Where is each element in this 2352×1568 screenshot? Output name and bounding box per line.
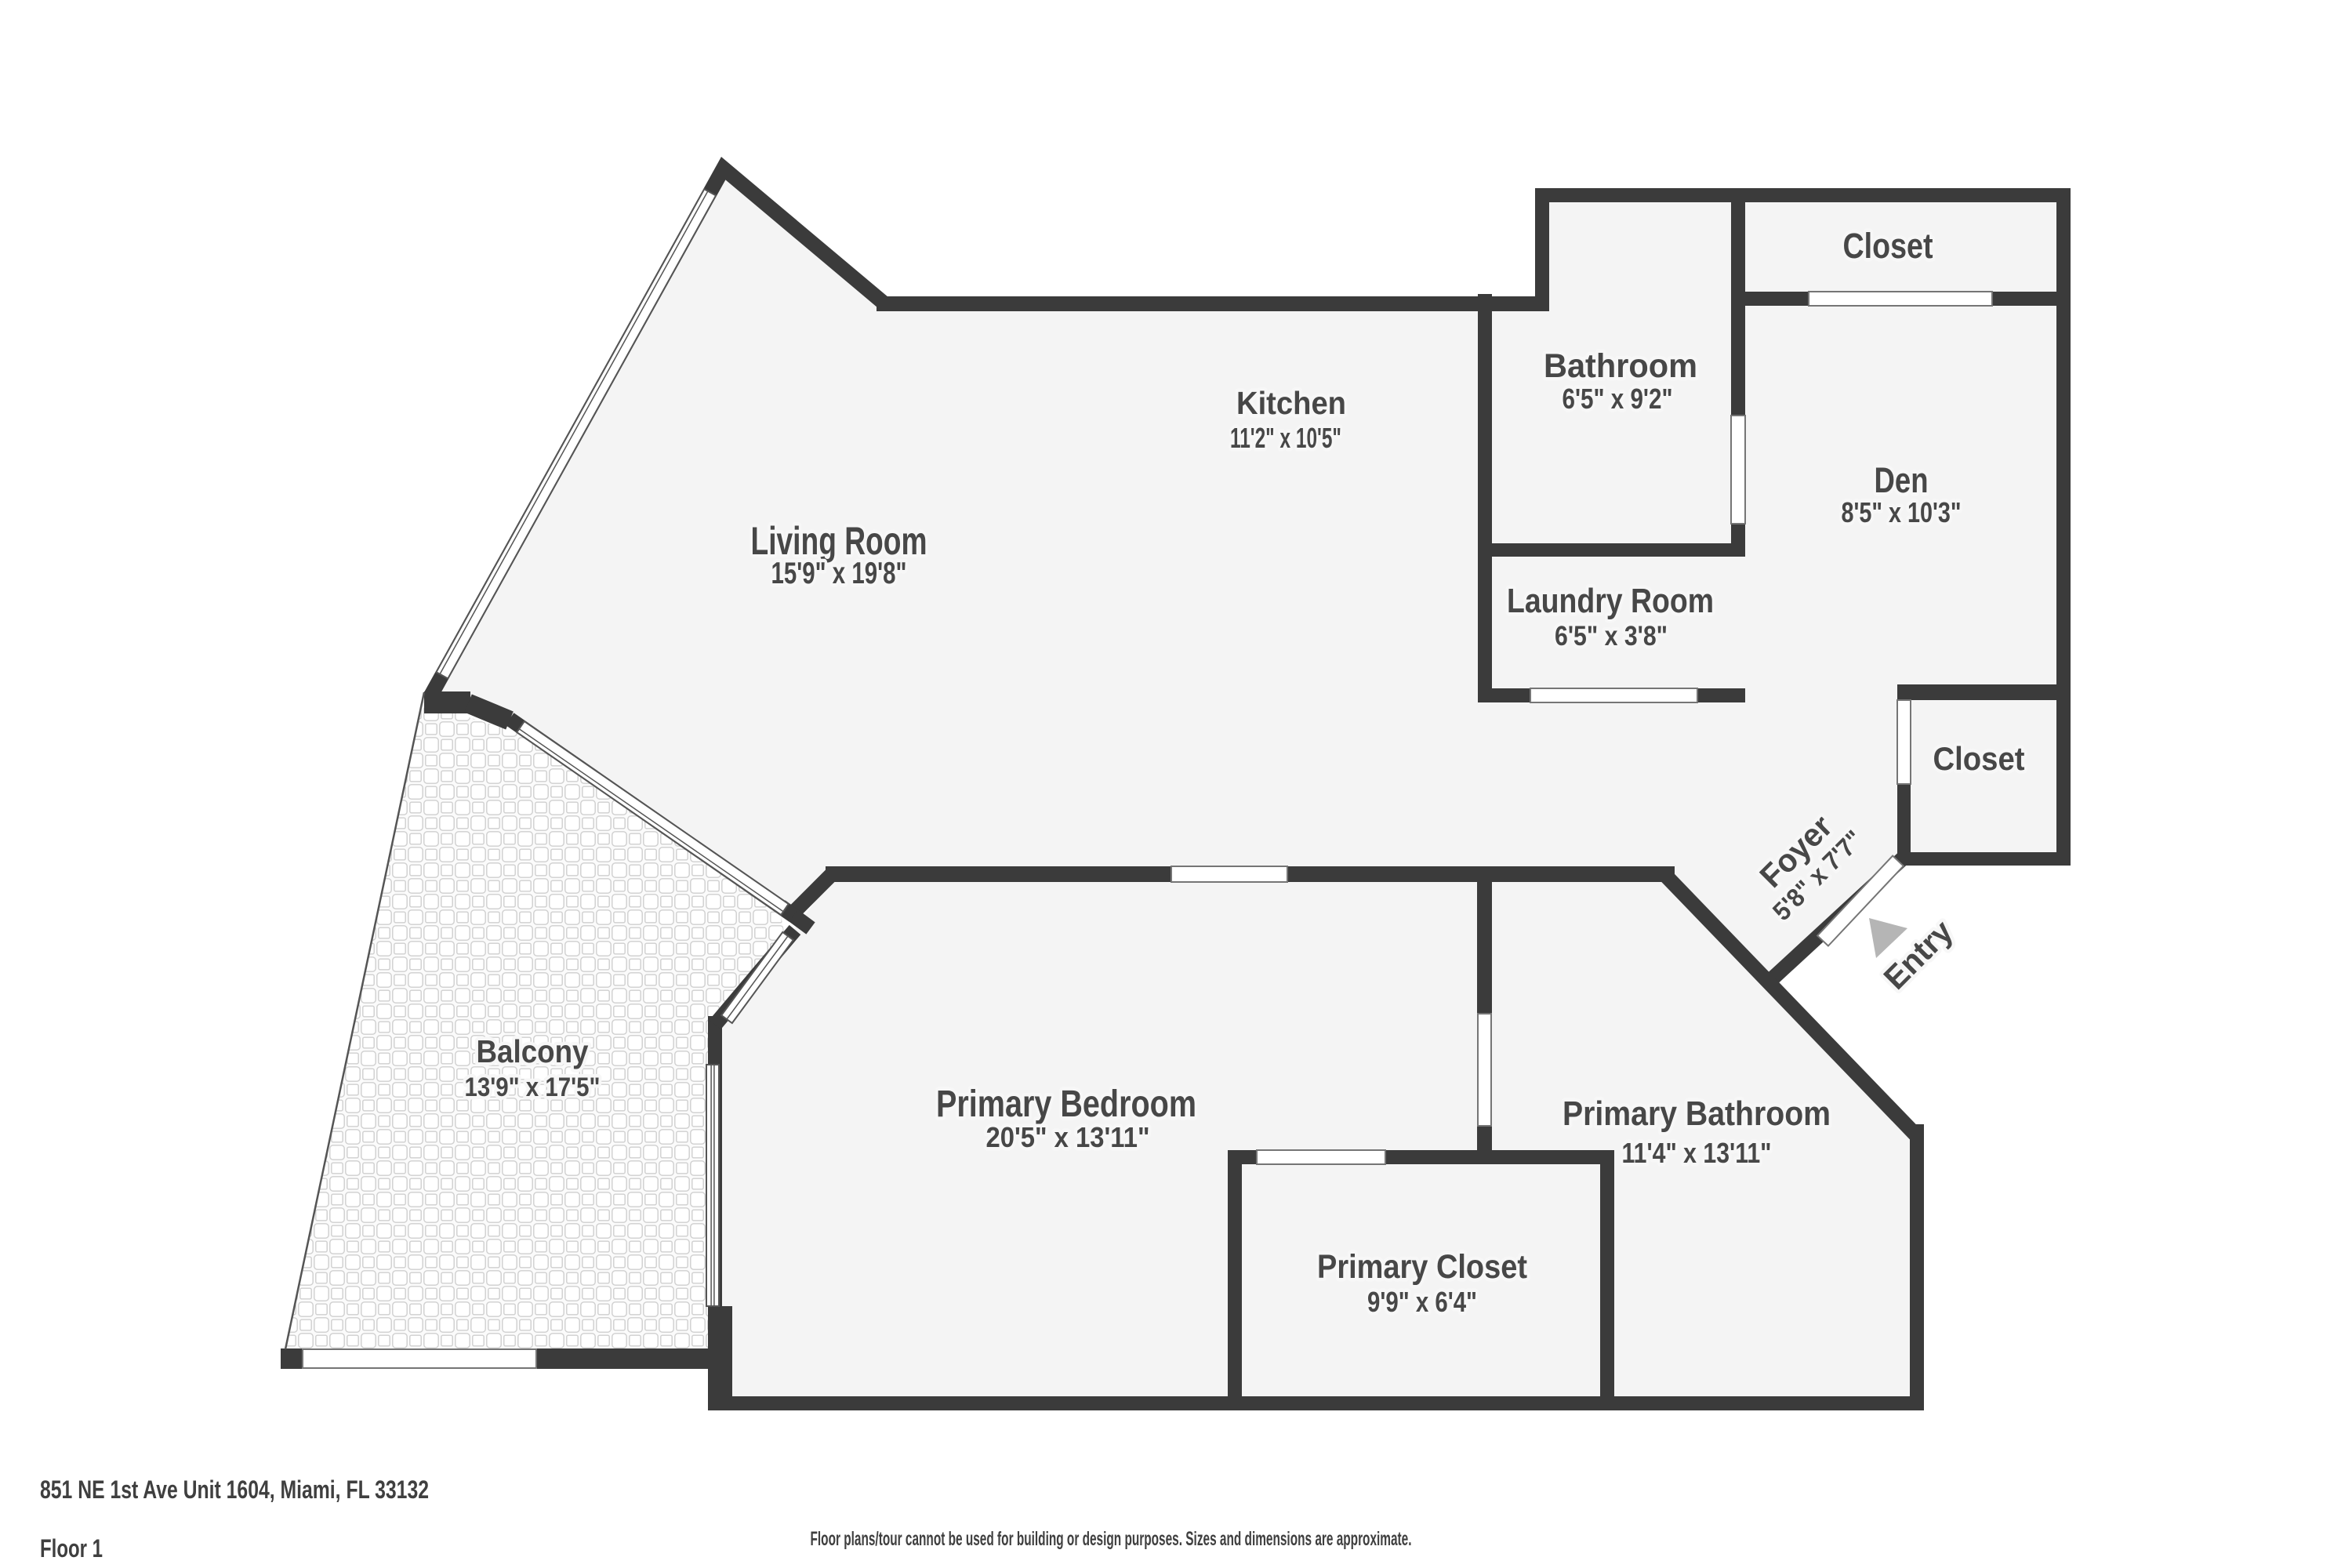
svg-text:11'2" x 10'5": 11'2" x 10'5"	[1230, 422, 1341, 454]
svg-text:Kitchen: Kitchen	[1236, 385, 1346, 421]
svg-text:Den: Den	[1875, 460, 1929, 500]
svg-text:Floor 1: Floor 1	[40, 1534, 103, 1563]
svg-text:Primary Bathroom: Primary Bathroom	[1563, 1094, 1831, 1133]
svg-text:Closet: Closet	[1843, 226, 1933, 266]
svg-text:9'9" x 6'4": 9'9" x 6'4"	[1367, 1286, 1477, 1318]
svg-text:11'4" x 13'11": 11'4" x 13'11"	[1622, 1137, 1772, 1169]
svg-text:6'5" x 9'2": 6'5" x 9'2"	[1563, 383, 1673, 415]
svg-text:Floor plans/tour cannot be use: Floor plans/tour cannot be used for buil…	[811, 1528, 1412, 1550]
svg-text:Closet: Closet	[1933, 740, 2025, 777]
svg-text:Balcony: Balcony	[477, 1033, 589, 1069]
svg-text:Laundry Room: Laundry Room	[1507, 582, 1714, 620]
svg-text:15'9" x 19'8": 15'9" x 19'8"	[771, 557, 907, 590]
svg-text:6'5" x 3'8": 6'5" x 3'8"	[1555, 621, 1668, 652]
svg-text:Bathroom: Bathroom	[1544, 347, 1697, 385]
svg-text:Primary Bedroom: Primary Bedroom	[936, 1083, 1196, 1125]
svg-text:8'5" x 10'3": 8'5" x 10'3"	[1842, 496, 1962, 528]
svg-text:20'5" x 13'11": 20'5" x 13'11"	[986, 1121, 1150, 1153]
svg-text:Primary Closet: Primary Closet	[1317, 1248, 1527, 1286]
svg-text:851 NE 1st Ave Unit 1604, Miam: 851 NE 1st Ave Unit 1604, Miami, FL 3313…	[40, 1475, 429, 1504]
svg-text:13'9" x 17'5": 13'9" x 17'5"	[465, 1073, 601, 1102]
